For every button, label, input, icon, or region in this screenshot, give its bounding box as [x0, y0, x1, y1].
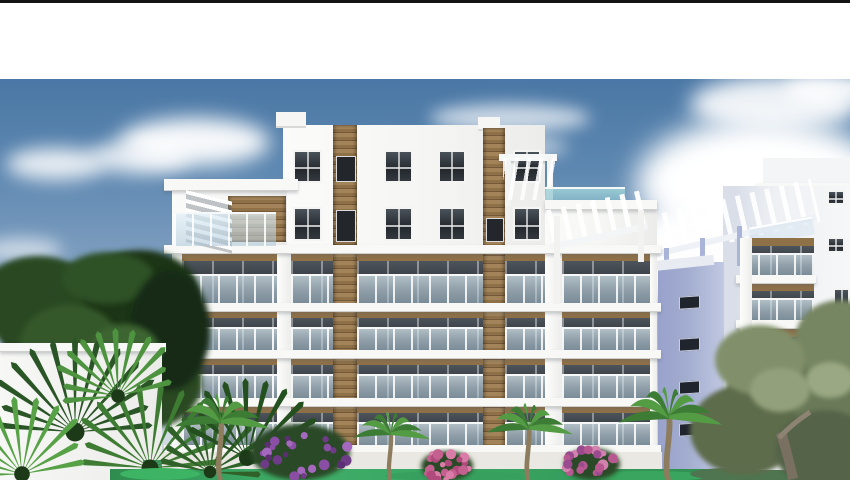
facade-pier [650, 245, 657, 452]
balcony-glass-railing [291, 327, 333, 352]
balcony-glass-railing [291, 422, 333, 447]
header-band [0, 0, 850, 79]
terrace-glass-railing [174, 212, 276, 246]
listing-photo [0, 0, 850, 480]
balcony-glass-railing [357, 274, 483, 305]
top-black-bar [0, 0, 850, 3]
floor-slab [164, 245, 661, 254]
pergola-post [554, 216, 560, 304]
balcony-glass-railing [182, 374, 277, 400]
floor-slab [164, 350, 661, 359]
balcony-glass-railing [505, 374, 545, 400]
balcony-glass-railing [562, 327, 650, 352]
floor-slab [164, 398, 661, 407]
balcony-glass-railing [291, 374, 333, 400]
pergola-post [638, 210, 644, 262]
left-wing-pergola-slab [164, 179, 298, 191]
lawn-strip [110, 469, 730, 480]
low-building-roof-edge [0, 343, 166, 352]
balcony-glass-railing [505, 327, 545, 352]
balcony-glass-railing [182, 274, 277, 305]
balcony-glass-railing [562, 274, 650, 305]
balcony-glass-railing [182, 327, 277, 352]
balcony-glass-railing [562, 422, 650, 447]
balcony-glass-railing [357, 327, 483, 352]
low-white-building [0, 345, 162, 480]
floor-slab [164, 303, 661, 312]
balcony-glass-railing [505, 422, 545, 447]
ground-right [700, 470, 850, 480]
balcony-glass-railing [562, 374, 650, 400]
facade-pier [277, 245, 291, 452]
balcony-glass-railing [357, 422, 483, 447]
balcony-glass-railing [357, 374, 483, 400]
facade-pier [172, 245, 182, 452]
balcony-glass-railing [291, 274, 333, 305]
balcony-glass-railing [182, 422, 277, 447]
balcony-glass-railing [505, 274, 545, 305]
